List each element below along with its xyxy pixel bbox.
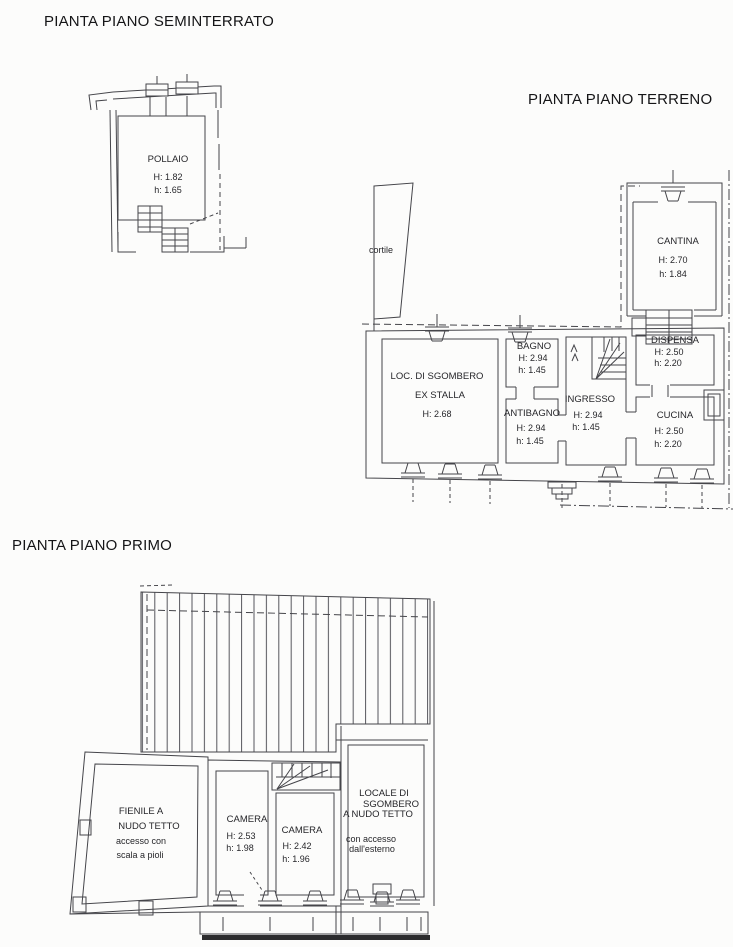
window-icon (654, 468, 678, 482)
room-dim-pollaio-h: h: 1.65 (154, 186, 182, 196)
room-dim-bagno-H: H: 2.94 (518, 354, 547, 364)
floor-plan-page: PIANTA PIANO SEMINTERRATO PIANTA PIANO T… (0, 0, 733, 947)
locale-room-outline (348, 745, 424, 897)
seminterrato-stairs-icon (138, 206, 218, 252)
window-icon (438, 464, 462, 478)
room-dim-pollaio-H: H: 1.82 (153, 173, 182, 183)
room-dim-camera1-h: h: 1.98 (226, 844, 254, 854)
room-name-fienile-1: FIENILE A (119, 807, 163, 817)
room-dim-antibagno-h: h: 1.45 (516, 437, 544, 447)
room-dim-dispensa-H: H: 2.50 (654, 348, 683, 358)
window-icon (401, 463, 425, 477)
window-icon (690, 469, 714, 483)
room-name-cucina: CUCINA (657, 411, 693, 421)
room-dim-ingresso-h: h: 1.45 (572, 423, 600, 433)
room-dim-cantina-H: H: 2.70 (658, 256, 687, 266)
plan-title-primo: PIANTA PIANO PRIMO (12, 537, 172, 554)
room-name-locale-1: LOCALE DI (359, 789, 409, 799)
roof-hatch-area (141, 592, 430, 752)
room-name-pollaio: POLLAIO (148, 155, 189, 165)
room-dim-sgombero-H: H: 2.68 (422, 410, 451, 420)
window-icon (598, 467, 622, 481)
window-icon (661, 187, 685, 201)
boundary-dashed-line (362, 186, 640, 327)
room-dim-cantina-h: h: 1.84 (659, 270, 687, 280)
room-name-bagno: BAGNO (517, 342, 551, 352)
exterior-steps-icon (548, 482, 576, 508)
room-dim-camera2-H: H: 2.42 (282, 842, 311, 852)
room-name-sgombero-1: LOC. DI SGOMBERO (391, 372, 484, 382)
room-note-fienile-2: scala a pioli (116, 851, 163, 861)
room-dim-antibagno-H: H: 2.94 (516, 424, 545, 434)
room-name-camera1: CAMERA (227, 815, 268, 825)
primo-stairs-icon (272, 763, 340, 790)
balcony-edge-bar (202, 935, 430, 940)
room-dim-cucina-H: H: 2.50 (654, 427, 683, 437)
room-note-fienile-1: accesso con (116, 837, 166, 847)
plan-title-terreno: PIANTA PIANO TERRENO (528, 91, 712, 108)
room-note-locale-2: dall'esterno (349, 845, 395, 855)
room-name-fienile-2: NUDO TETTO (118, 822, 179, 832)
primo-drawing (70, 585, 434, 940)
window-icon (258, 891, 282, 905)
room-name-ingresso: INGRESSO (565, 395, 615, 405)
pollaio-room-outline (118, 116, 205, 220)
room-name-dispensa: DISPENSA (651, 336, 699, 346)
room-name-antibagno: ANTIBAGNO (504, 409, 560, 419)
window-icon (303, 891, 327, 905)
room-dim-camera2-h: h: 1.96 (282, 855, 310, 865)
room-dim-ingresso-H: H: 2.94 (573, 411, 602, 421)
area-label-cortile: cortile (369, 245, 393, 255)
ingresso-stairs-icon (571, 337, 626, 379)
room-name-cantina: CANTINA (657, 237, 699, 247)
boundary-dashdot-line (560, 505, 733, 509)
room-name-locale-3: A NUDO TETTO (343, 810, 413, 820)
plan-title-seminterrato: PIANTA PIANO SEMINTERRATO (44, 13, 274, 30)
window-icon (478, 465, 502, 479)
room-name-camera2: CAMERA (282, 826, 323, 836)
balcony-strip (200, 906, 428, 934)
room-dim-dispensa-h: h: 2.20 (654, 359, 682, 369)
room-name-sgombero-2: EX STALLA (415, 391, 465, 401)
room-dim-camera1-H: H: 2.53 (226, 832, 255, 842)
room-dim-cucina-h: h: 2.20 (654, 440, 682, 450)
window-icon (213, 891, 237, 905)
room-dim-bagno-h: h: 1.45 (518, 366, 546, 376)
